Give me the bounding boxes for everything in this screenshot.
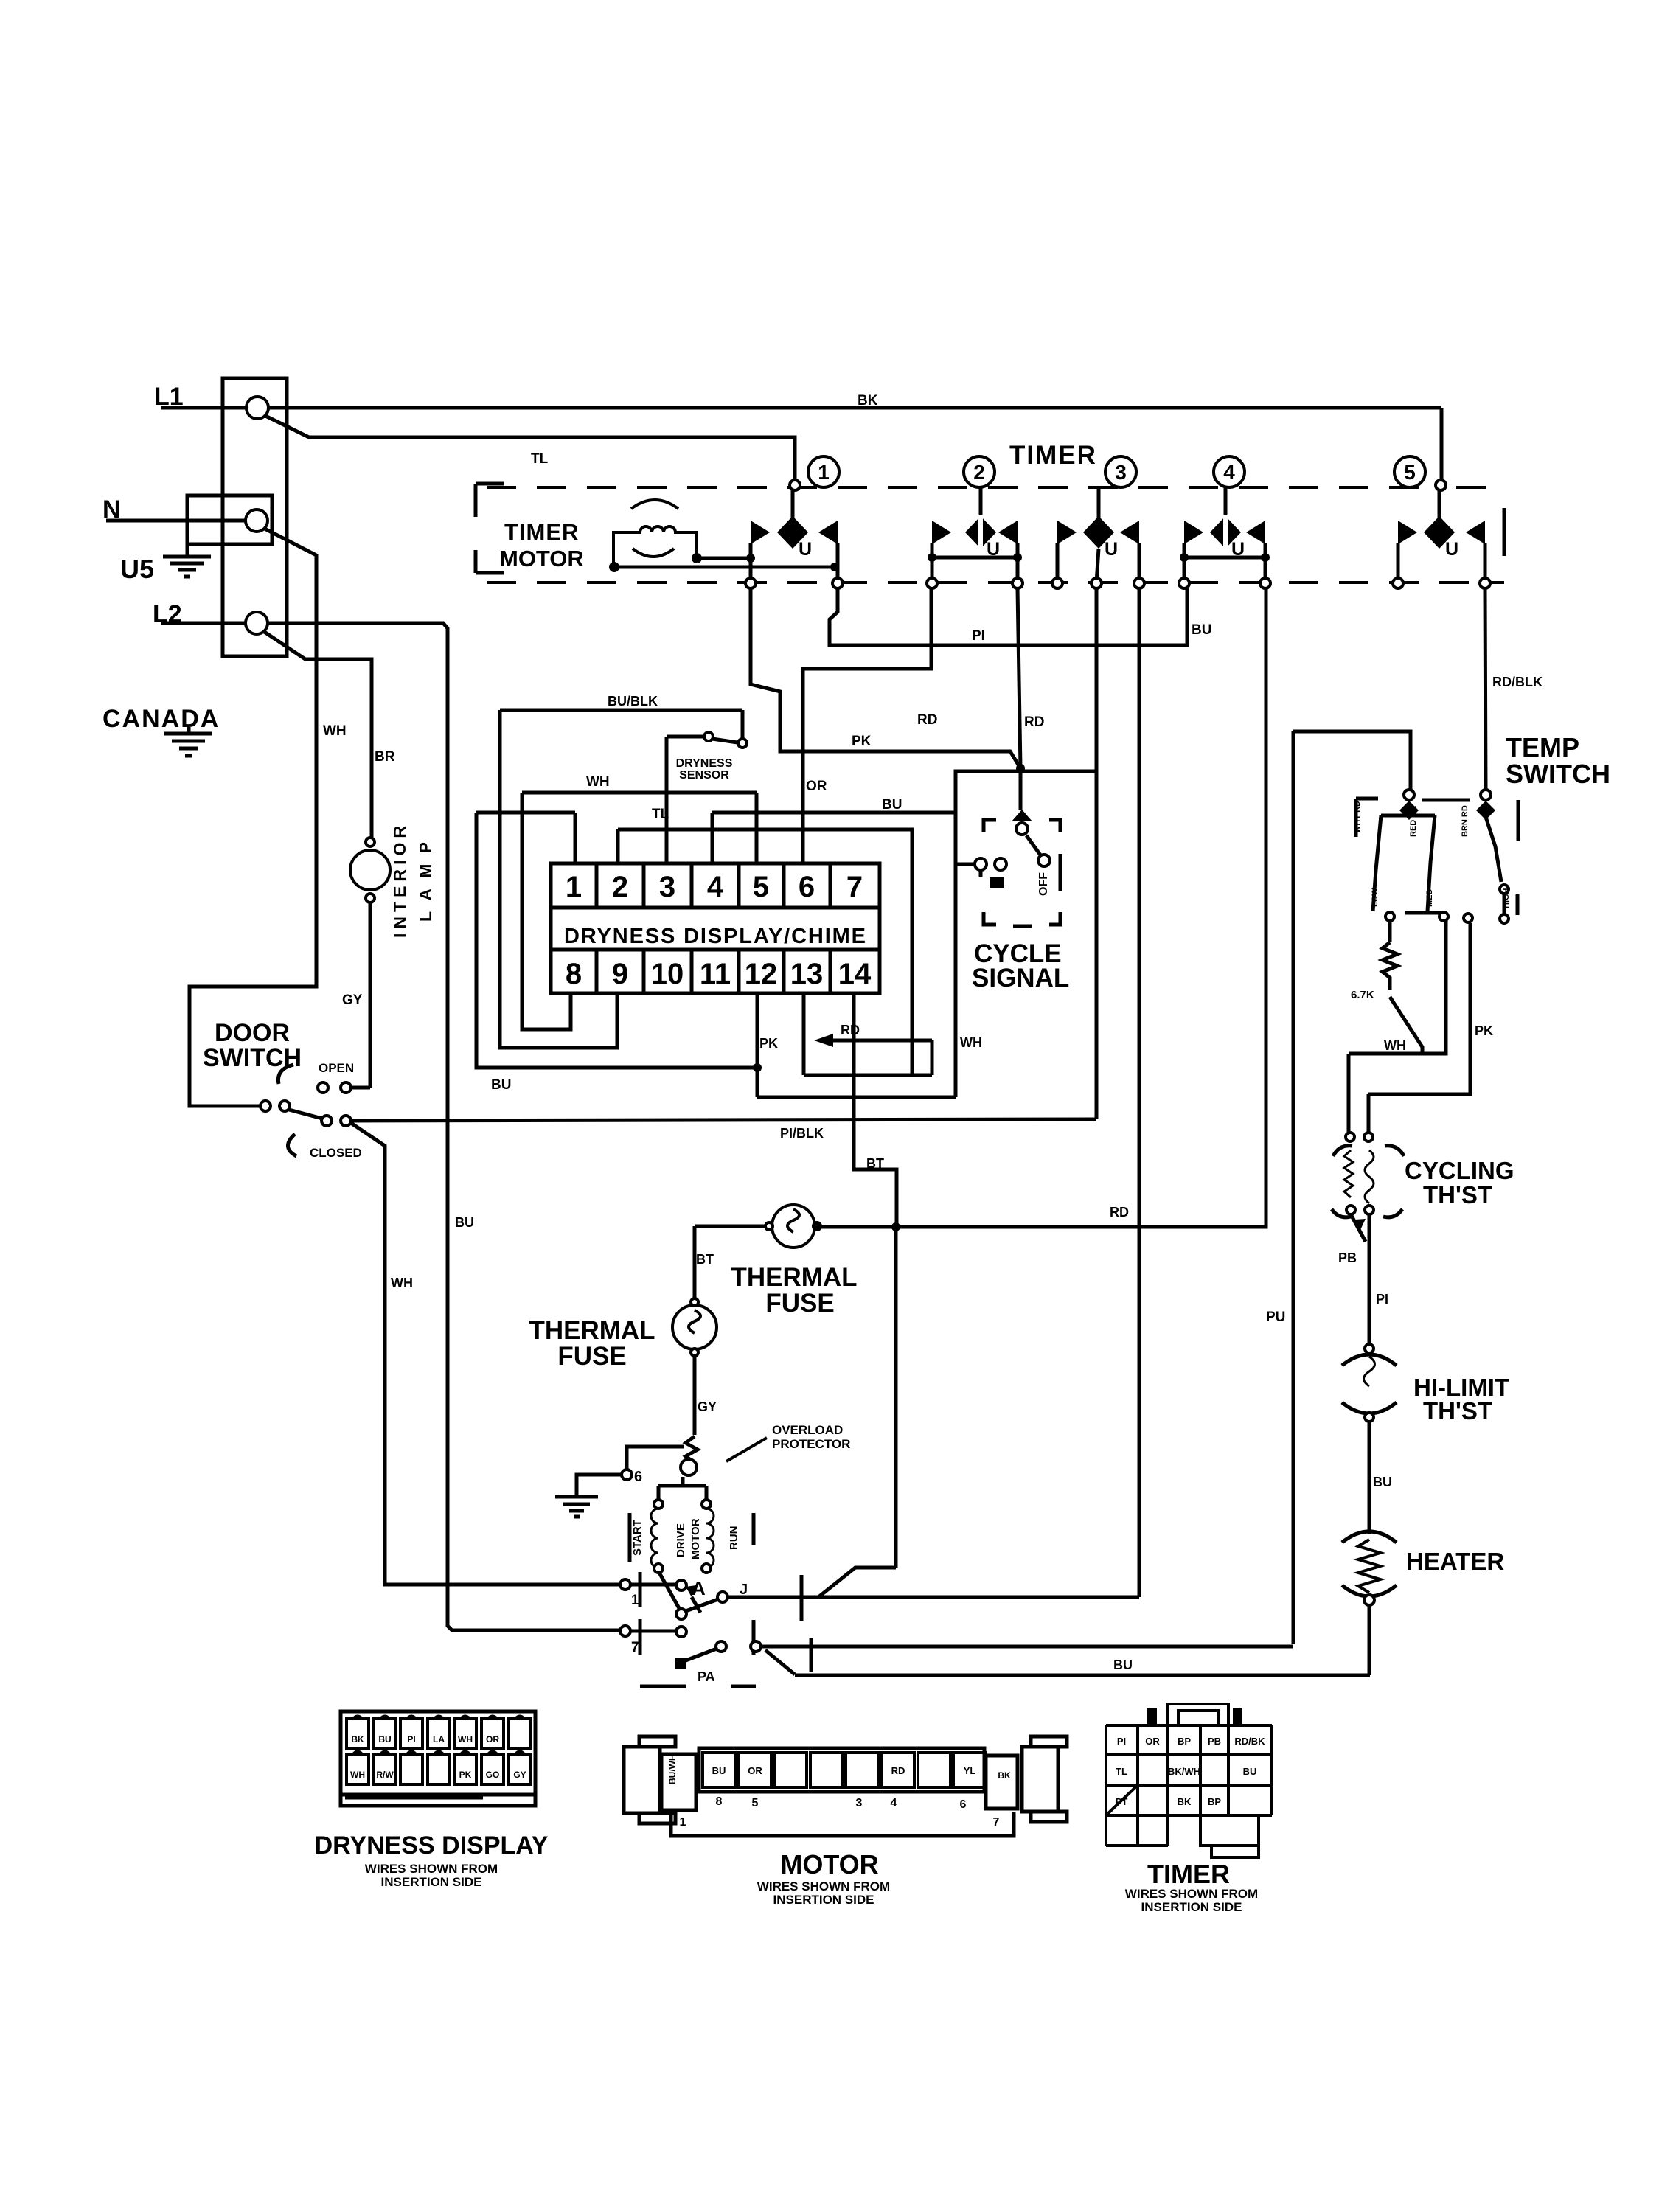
svg-text:DRYNESS: DRYNESS: [676, 757, 733, 770]
svg-text:CYCLING: CYCLING: [1405, 1157, 1514, 1184]
svg-text:OFF: OFF: [1037, 872, 1050, 896]
svg-text:PK: PK: [759, 1036, 778, 1051]
svg-text:1: 1: [566, 871, 582, 903]
svg-text:1: 1: [631, 1593, 639, 1608]
svg-text:HIGH: HIGH: [1502, 888, 1511, 908]
svg-text:BU: BU: [712, 1765, 726, 1776]
svg-text:BK: BK: [351, 1734, 364, 1745]
svg-text:CLOSED: CLOSED: [310, 1146, 362, 1160]
svg-text:BU: BU: [882, 797, 902, 813]
svg-text:BU: BU: [1373, 1475, 1392, 1489]
svg-text:5: 5: [752, 1797, 759, 1809]
svg-text:GO: GO: [486, 1770, 500, 1780]
svg-text:TIMER: TIMER: [504, 519, 579, 545]
svg-text:BP: BP: [1178, 1736, 1191, 1747]
svg-text:BR: BR: [375, 749, 395, 765]
svg-text:TIMER: TIMER: [1009, 441, 1097, 470]
svg-text:2: 2: [973, 461, 985, 484]
svg-text:U: U: [799, 539, 812, 560]
svg-text:SWITCH: SWITCH: [1506, 759, 1610, 789]
svg-text:3: 3: [1115, 461, 1127, 484]
svg-text:RD/BLK: RD/BLK: [1492, 675, 1543, 689]
svg-text:2: 2: [612, 871, 628, 903]
svg-text:RD: RD: [841, 1023, 860, 1037]
svg-text:BU: BU: [1243, 1766, 1257, 1777]
svg-text:R/W: R/W: [376, 1770, 394, 1780]
svg-text:U: U: [1231, 539, 1245, 560]
svg-text:6: 6: [634, 1469, 642, 1485]
svg-text:BK: BK: [1178, 1796, 1192, 1807]
svg-text:U5: U5: [120, 554, 154, 584]
svg-text:INSERTION SIDE: INSERTION SIDE: [381, 1875, 482, 1889]
svg-text:6: 6: [799, 871, 815, 903]
svg-text:WH: WH: [391, 1276, 413, 1290]
svg-text:SWITCH: SWITCH: [203, 1044, 302, 1072]
svg-text:14: 14: [838, 958, 872, 990]
svg-text:8: 8: [716, 1795, 723, 1808]
svg-text:4: 4: [707, 871, 724, 903]
svg-text:BU/BLK: BU/BLK: [608, 694, 658, 709]
svg-text:LA: LA: [433, 1734, 445, 1745]
svg-text:TEMP: TEMP: [1506, 732, 1579, 762]
svg-text:WIRES SHOWN FROM: WIRES SHOWN FROM: [365, 1862, 498, 1876]
svg-text:OR: OR: [748, 1765, 762, 1776]
svg-text:PA: PA: [698, 1669, 715, 1684]
svg-text:WH: WH: [960, 1035, 982, 1050]
svg-text:1: 1: [818, 461, 829, 484]
svg-text:1: 1: [680, 1816, 686, 1829]
svg-text:9: 9: [612, 958, 628, 990]
svg-text:3: 3: [659, 871, 675, 903]
svg-text:8: 8: [566, 958, 582, 990]
svg-text:BT: BT: [696, 1252, 714, 1267]
svg-text:OR: OR: [1145, 1736, 1160, 1747]
svg-text:BRN RD: BRN RD: [1461, 805, 1470, 837]
svg-text:3: 3: [856, 1797, 863, 1809]
svg-text:RD: RD: [917, 712, 937, 728]
svg-text:PU: PU: [1266, 1310, 1285, 1325]
svg-text:MOTOR: MOTOR: [689, 1518, 702, 1559]
svg-text:WH: WH: [586, 774, 610, 790]
svg-text:L2: L2: [153, 600, 182, 628]
svg-text:6.7K: 6.7K: [1351, 989, 1374, 1001]
svg-text:7: 7: [846, 871, 863, 903]
svg-text:INSERTION SIDE: INSERTION SIDE: [1141, 1900, 1242, 1914]
svg-text:RED BK: RED BK: [1409, 806, 1418, 837]
svg-text:5: 5: [1404, 461, 1416, 484]
svg-text:BP: BP: [1208, 1796, 1221, 1807]
svg-text:PK: PK: [852, 734, 872, 749]
svg-text:BU: BU: [455, 1215, 474, 1230]
svg-text:DRYNESS DISPLAY: DRYNESS DISPLAY: [315, 1832, 549, 1860]
svg-text:OR: OR: [486, 1734, 499, 1745]
svg-text:4: 4: [891, 1797, 897, 1809]
svg-text:YL: YL: [964, 1765, 976, 1776]
svg-text:A: A: [692, 1577, 706, 1599]
svg-text:START: START: [631, 1520, 644, 1556]
svg-text:PI: PI: [1117, 1736, 1126, 1747]
svg-text:WIRES SHOWN FROM: WIRES SHOWN FROM: [757, 1879, 890, 1893]
svg-text:GY: GY: [513, 1770, 526, 1780]
svg-text:PB: PB: [1208, 1736, 1221, 1747]
svg-text:PI/BLK: PI/BLK: [780, 1126, 824, 1141]
svg-text:CANADA: CANADA: [102, 705, 220, 733]
svg-text:GY: GY: [342, 992, 363, 1008]
svg-text:PI: PI: [407, 1734, 415, 1745]
svg-text:PI: PI: [972, 628, 985, 644]
svg-text:THERMAL: THERMAL: [529, 1316, 655, 1345]
svg-text:SENSOR: SENSOR: [679, 769, 729, 782]
svg-text:10: 10: [651, 958, 684, 990]
svg-text:4: 4: [1223, 461, 1235, 484]
svg-text:7: 7: [631, 1640, 639, 1655]
svg-text:BU: BU: [491, 1077, 511, 1093]
svg-text:RUN: RUN: [728, 1526, 740, 1551]
svg-text:DOOR: DOOR: [215, 1019, 290, 1047]
svg-text:PT: PT: [1116, 1796, 1128, 1807]
svg-text:WH: WH: [1384, 1038, 1406, 1053]
svg-text:BK: BK: [858, 393, 878, 408]
svg-text:7: 7: [993, 1816, 1000, 1829]
svg-text:BU: BU: [378, 1734, 391, 1745]
svg-text:WH: WH: [458, 1734, 473, 1745]
svg-text:BU: BU: [1113, 1658, 1133, 1672]
svg-text:SIGNAL: SIGNAL: [972, 964, 1069, 992]
svg-text:THERMAL: THERMAL: [731, 1263, 857, 1292]
svg-text:OR: OR: [806, 779, 827, 794]
svg-text:PB: PB: [1338, 1251, 1357, 1265]
svg-text:TH'ST: TH'ST: [1423, 1181, 1492, 1208]
svg-text:RD: RD: [1024, 714, 1044, 730]
svg-text:RD: RD: [1110, 1205, 1129, 1220]
svg-text:BK/WH: BK/WH: [1168, 1766, 1200, 1777]
svg-text:MOTOR: MOTOR: [780, 1849, 878, 1879]
svg-text:MOTOR: MOTOR: [499, 546, 584, 571]
svg-text:DRYNESS DISPLAY/CHIME: DRYNESS DISPLAY/CHIME: [564, 925, 866, 948]
svg-text:L1: L1: [154, 383, 184, 411]
svg-text:U: U: [987, 539, 1000, 560]
svg-text:TL: TL: [531, 451, 549, 467]
svg-text:PI: PI: [1376, 1292, 1388, 1307]
svg-text:BU/WH: BU/WH: [667, 1754, 678, 1784]
svg-text:RD: RD: [891, 1765, 905, 1776]
svg-text:PK: PK: [459, 1770, 472, 1780]
svg-text:13: 13: [790, 958, 824, 990]
svg-text:WH: WH: [323, 723, 347, 739]
svg-text:TL: TL: [1116, 1766, 1127, 1777]
svg-text:12: 12: [745, 958, 778, 990]
svg-text:U: U: [1105, 539, 1118, 560]
svg-text:LOW: LOW: [1371, 888, 1380, 907]
svg-text:DRIVE: DRIVE: [675, 1523, 687, 1557]
svg-text:PK: PK: [1475, 1023, 1493, 1038]
svg-text:WIRES SHOWN FROM: WIRES SHOWN FROM: [1125, 1887, 1258, 1901]
svg-text:HEATER: HEATER: [1406, 1548, 1504, 1575]
svg-text:6: 6: [960, 1798, 967, 1811]
svg-text:TIMER: TIMER: [1147, 1859, 1230, 1889]
svg-text:OPEN: OPEN: [319, 1061, 354, 1075]
svg-text:WHT RD: WHT RD: [1353, 801, 1362, 833]
svg-text:WH: WH: [350, 1770, 365, 1780]
svg-text:GY: GY: [698, 1399, 717, 1414]
svg-text:11: 11: [700, 958, 731, 990]
svg-text:BT: BT: [866, 1156, 884, 1171]
svg-text:N: N: [102, 495, 121, 524]
svg-text:U: U: [1445, 539, 1458, 560]
svg-text:OVERLOAD: OVERLOAD: [772, 1423, 843, 1437]
svg-text:MED: MED: [1425, 889, 1434, 908]
svg-text:TH'ST: TH'ST: [1423, 1397, 1492, 1425]
svg-text:BK: BK: [998, 1770, 1011, 1781]
svg-text:FUSE: FUSE: [557, 1342, 626, 1371]
svg-text:PROTECTOR: PROTECTOR: [772, 1437, 850, 1451]
svg-text:INSERTION SIDE: INSERTION SIDE: [773, 1893, 874, 1907]
svg-text:TL: TL: [652, 807, 669, 822]
svg-text:J: J: [740, 1582, 748, 1598]
svg-text:5: 5: [753, 871, 769, 903]
svg-text:RD/BK: RD/BK: [1234, 1736, 1265, 1747]
svg-text:BU: BU: [1192, 622, 1211, 638]
svg-text:FUSE: FUSE: [765, 1289, 834, 1318]
